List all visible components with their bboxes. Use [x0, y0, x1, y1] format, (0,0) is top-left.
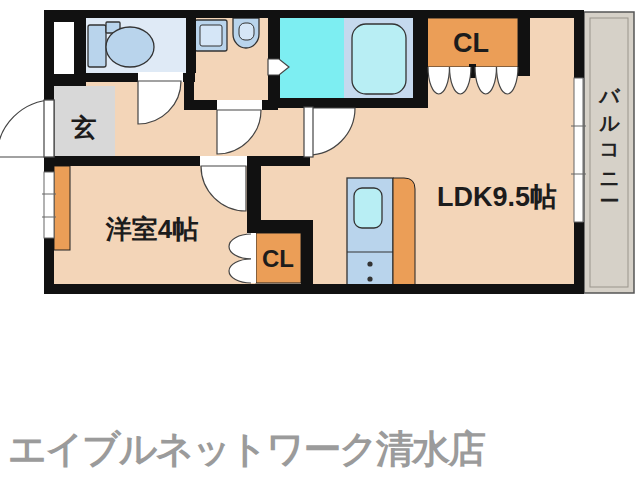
- floor-plan: 玄 洋室4帖 LDK9.5帖 CL CL バルコニー エイブルネットワーク清水店: [0, 0, 640, 480]
- window-left: [42, 172, 56, 238]
- entrance-label: 玄: [71, 113, 97, 141]
- floor-plan-drawing: 玄 洋室4帖 LDK9.5帖 CL CL: [0, 0, 640, 480]
- store-name: エイブルネットワーク清水店: [8, 424, 484, 475]
- pipe-space: [54, 22, 74, 74]
- western-room-door-gap: [200, 156, 247, 166]
- bathroom-floor: [280, 18, 344, 98]
- sink-icon: [233, 18, 259, 48]
- balcony-label: バルコニー: [594, 74, 624, 224]
- closet-bottom-label: CL: [262, 245, 294, 272]
- closet-top-label: CL: [453, 28, 489, 58]
- ldk-label: LDK9.5帖: [437, 182, 557, 212]
- western-room-label: 洋室4帖: [105, 214, 198, 244]
- window-side-counter: [54, 166, 70, 250]
- washing-machine-icon: [195, 20, 227, 51]
- kitchen-unit-icon: [347, 178, 415, 285]
- entrance-door-swing-icon: [0, 100, 54, 157]
- washroom-door-gap: [217, 100, 262, 110]
- bathtub-icon: [352, 24, 406, 94]
